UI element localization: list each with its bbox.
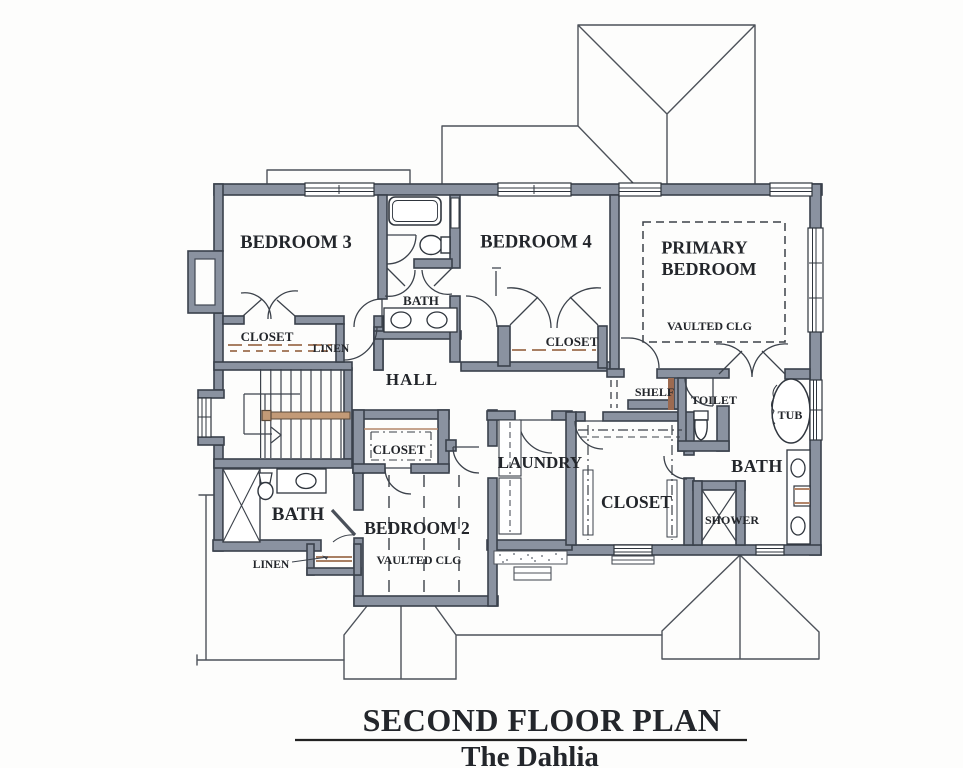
svg-text:PRIMARY: PRIMARY <box>661 238 747 258</box>
svg-text:CLOSET: CLOSET <box>546 334 599 349</box>
svg-text:BATH: BATH <box>731 456 783 476</box>
svg-text:BEDROOM 2: BEDROOM 2 <box>364 518 470 538</box>
svg-text:BATH: BATH <box>272 504 325 525</box>
svg-text:SHOWER: SHOWER <box>705 513 759 527</box>
svg-text:VAULTED CLG: VAULTED CLG <box>376 553 461 567</box>
svg-text:VAULTED CLG: VAULTED CLG <box>667 319 752 333</box>
svg-text:HALL: HALL <box>386 370 438 389</box>
svg-text:LINEN: LINEN <box>313 343 350 355</box>
svg-text:BATH: BATH <box>403 293 439 308</box>
svg-text:BEDROOM 4: BEDROOM 4 <box>480 233 592 253</box>
svg-text:CLOSET: CLOSET <box>373 442 426 457</box>
svg-text:BEDROOM 3: BEDROOM 3 <box>240 233 352 253</box>
svg-text:SHELF: SHELF <box>635 385 674 399</box>
svg-text:LINEN: LINEN <box>253 559 290 571</box>
svg-text:The Dahlia: The Dahlia <box>461 741 599 768</box>
svg-text:CLOSET: CLOSET <box>601 492 672 512</box>
svg-text:CLOSET: CLOSET <box>241 329 294 344</box>
svg-text:SECOND FLOOR PLAN: SECOND FLOOR PLAN <box>363 702 722 738</box>
svg-text:BEDROOM: BEDROOM <box>661 259 756 279</box>
svg-text:LAUNDRY: LAUNDRY <box>498 453 582 472</box>
svg-text:TOILET: TOILET <box>691 393 737 407</box>
svg-text:TUB: TUB <box>778 408 803 422</box>
